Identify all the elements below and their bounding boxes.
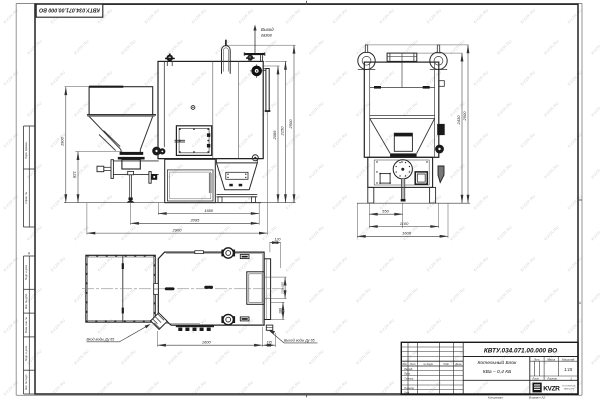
- svg-text:Инв. № дубл.: Инв. № дубл.: [24, 293, 28, 309]
- svg-text:КОТЕЛЬНЫЙ: КОТЕЛЬНЫЙ: [562, 384, 576, 387]
- svg-text:Масштаб: Масштаб: [562, 357, 575, 361]
- svg-text:Взам. инв. №: Взам. инв. №: [24, 317, 28, 333]
- svg-text:1650: 1650: [204, 208, 214, 213]
- svg-text:195: 195: [267, 340, 273, 344]
- svg-text:Выход: Выход: [261, 27, 274, 32]
- svg-text:Подп. и дата: Подп. и дата: [24, 345, 28, 361]
- svg-text:225х350: 225х350: [281, 282, 285, 295]
- svg-text:100: 100: [278, 308, 282, 314]
- svg-text:КВа – 0,4 КБ: КВа – 0,4 КБ: [483, 369, 512, 375]
- svg-text:Выход воды Ду 65: Выход воды Ду 65: [284, 339, 315, 343]
- svg-text:1600: 1600: [202, 340, 212, 345]
- svg-text:2150: 2150: [279, 126, 284, 137]
- svg-text:КВТУ.034.071.00.000 ВО: КВТУ.034.071.00.000 ВО: [484, 347, 557, 354]
- svg-text:1600: 1600: [402, 231, 412, 236]
- svg-text:1900: 1900: [59, 136, 64, 146]
- svg-text:газов: газов: [261, 32, 272, 37]
- svg-text:Инв. № подл.: Инв. № подл.: [24, 374, 28, 390]
- svg-text:550: 550: [382, 209, 389, 214]
- svg-text:2430: 2430: [456, 115, 461, 126]
- svg-text:Утв.: Утв.: [404, 392, 410, 395]
- svg-text:Листов: Листов: [546, 376, 557, 380]
- svg-text:821: 821: [71, 171, 76, 178]
- svg-text:Разраб.: Разраб.: [404, 368, 413, 371]
- svg-text:Т.контр.: Т.контр.: [404, 377, 414, 380]
- svg-text:KVZR: KVZR: [543, 386, 560, 393]
- svg-text:Перв. примен.: Перв. примен.: [24, 141, 28, 159]
- svg-text:Лит.: Лит.: [533, 357, 540, 361]
- svg-text:Котельный Блок: Котельный Блок: [478, 359, 518, 366]
- svg-text:2900: 2900: [172, 227, 183, 232]
- svg-text:Подп. и дата: Подп. и дата: [24, 264, 28, 280]
- svg-text:1100: 1100: [400, 221, 409, 226]
- svg-text:2086: 2086: [272, 130, 277, 141]
- svg-text:Копировал: Копировал: [488, 396, 503, 400]
- svg-text:2095: 2095: [189, 218, 200, 223]
- svg-text:Н.контр.: Н.контр.: [404, 387, 414, 390]
- svg-text:Формат А2: Формат А2: [529, 396, 546, 400]
- svg-text:Вход воды Ду 65: Вход воды Ду 65: [87, 338, 115, 342]
- svg-text:Справ. №: Справ. №: [24, 192, 28, 204]
- svg-text:Лист: Лист: [531, 376, 540, 380]
- svg-text:2500: 2500: [462, 111, 467, 122]
- svg-text:КВТУ.034.071.00.000 ВО: КВТУ.034.071.00.000 ВО: [38, 7, 100, 13]
- svg-text:120: 120: [275, 238, 281, 242]
- svg-text:ЗАВОД РФ: ЗАВОД РФ: [564, 388, 575, 391]
- svg-text:Подп.: Подп.: [443, 363, 449, 366]
- svg-text:№ докум.: № докум.: [423, 363, 433, 366]
- svg-text:2500: 2500: [288, 119, 293, 130]
- svg-text:1:15: 1:15: [564, 367, 573, 372]
- svg-text:Пров.: Пров.: [404, 373, 411, 376]
- svg-text:Масса: Масса: [547, 357, 555, 361]
